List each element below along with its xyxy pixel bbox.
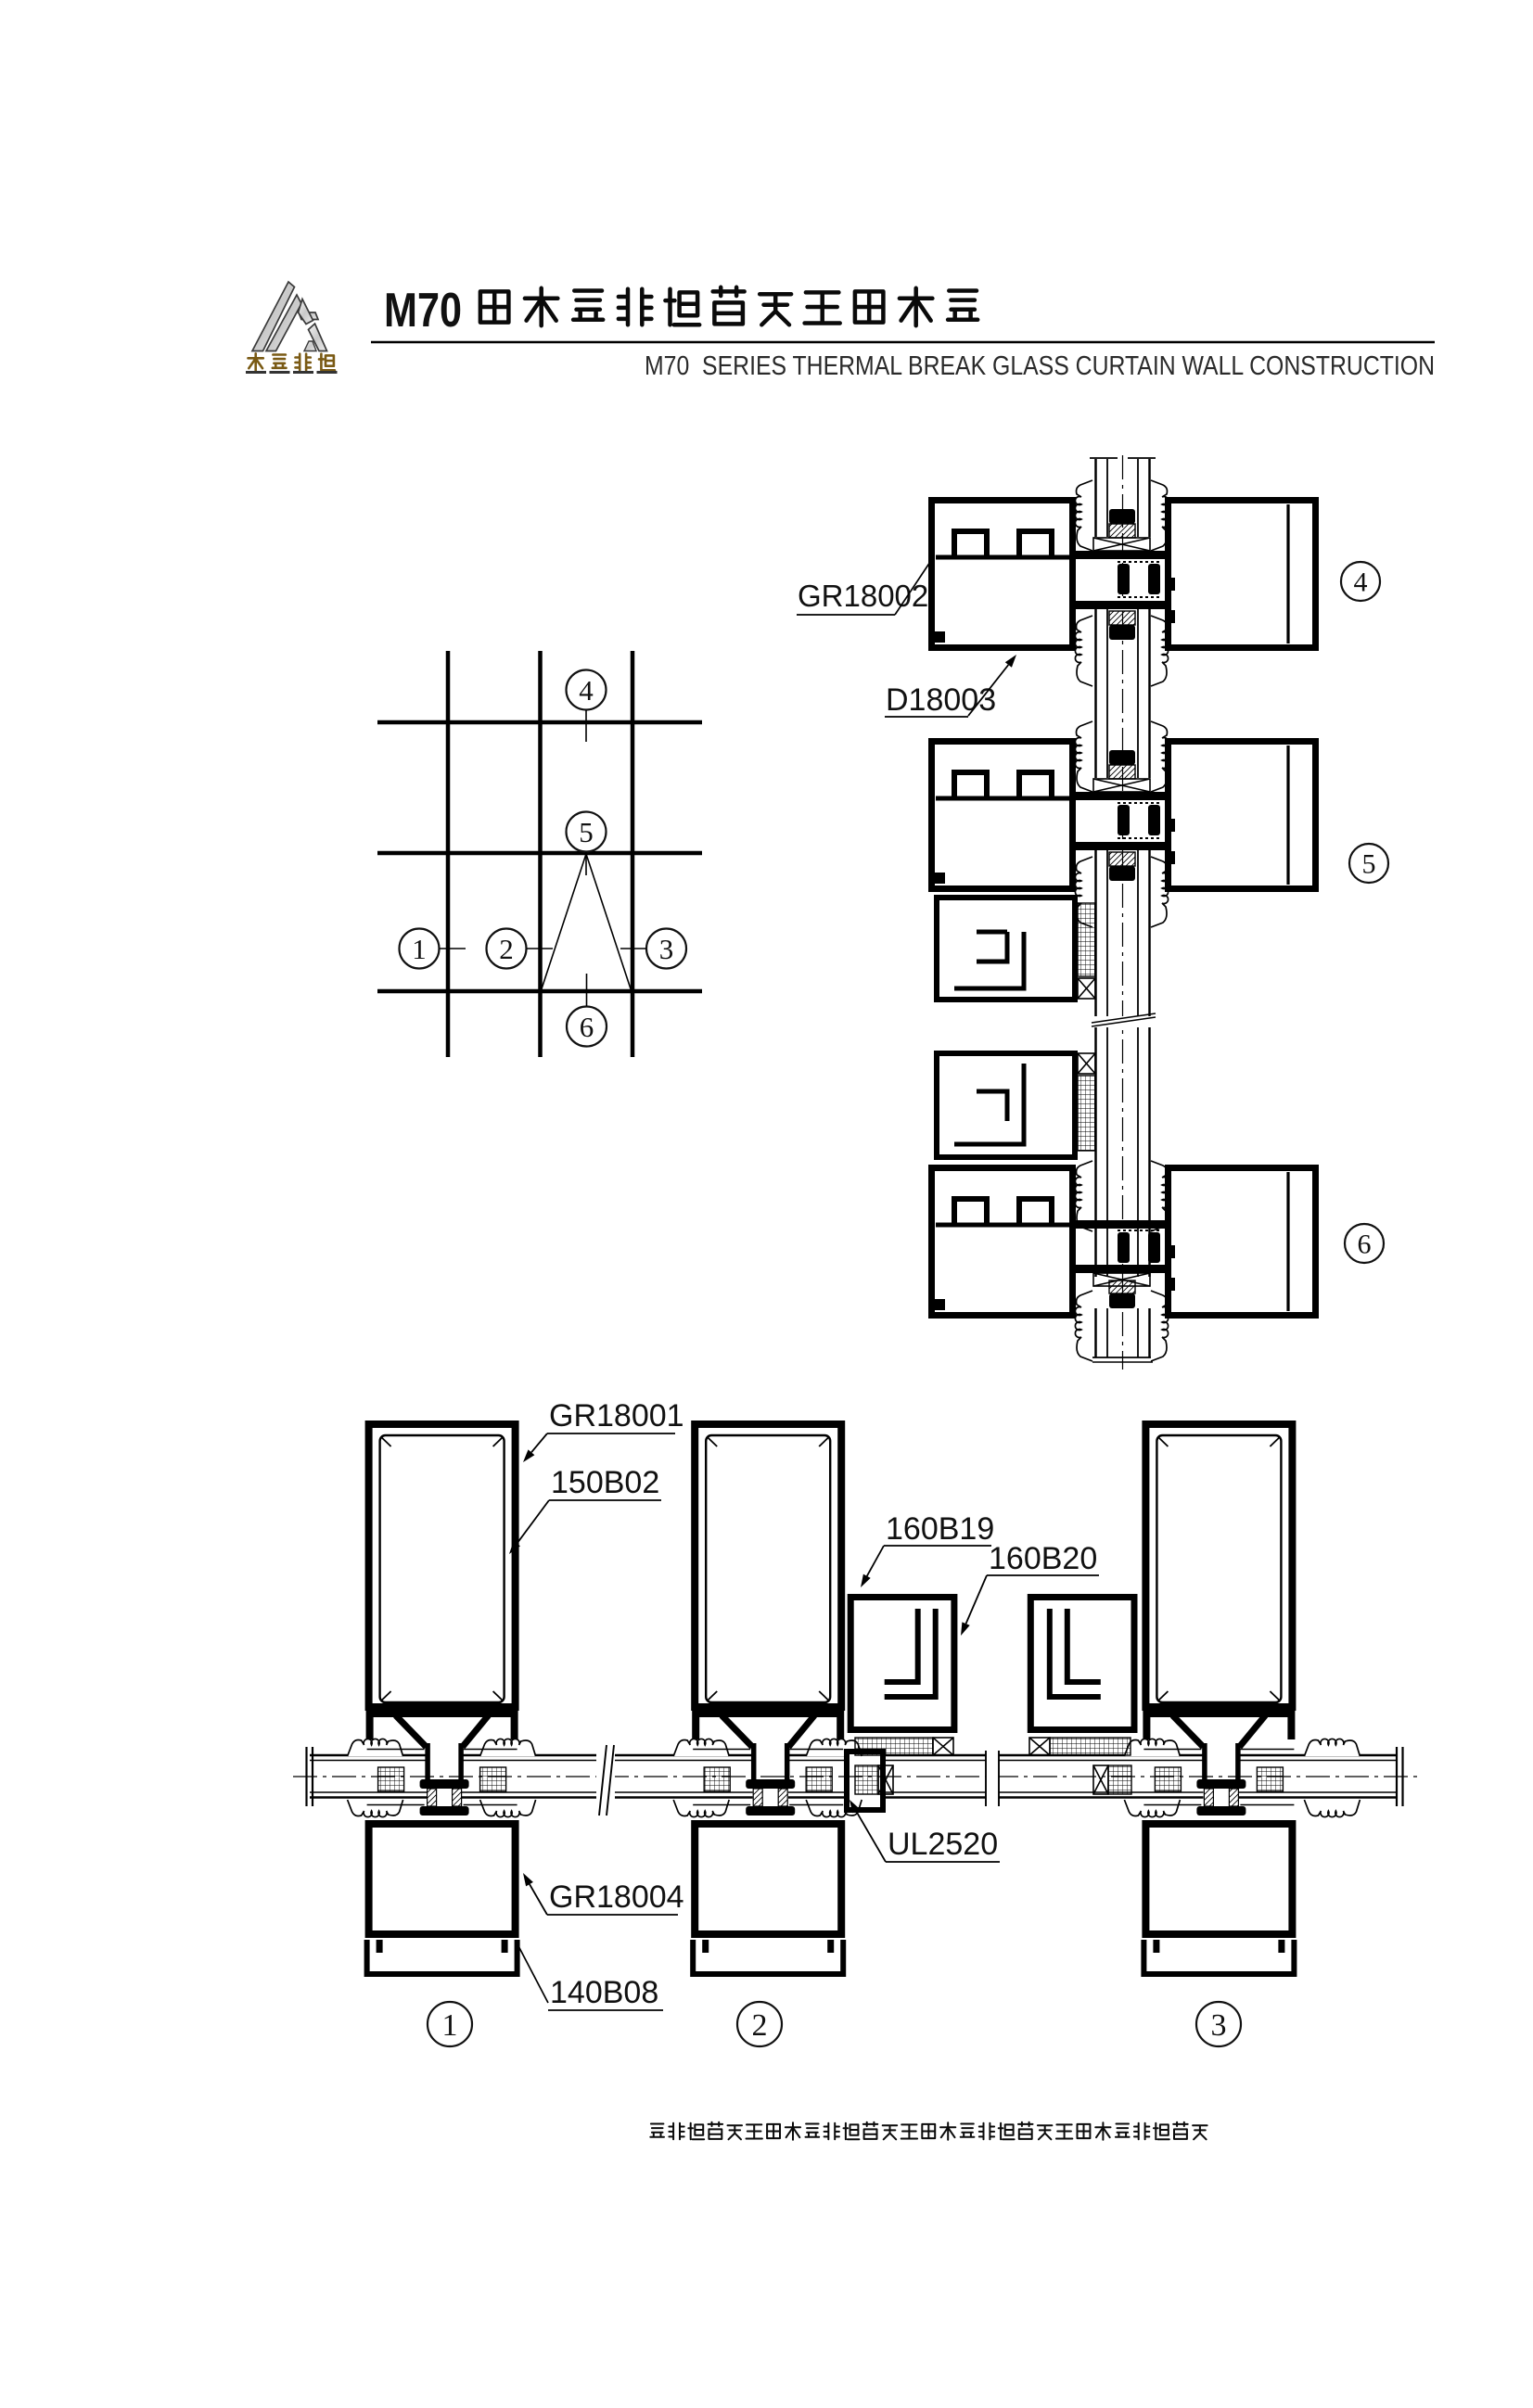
svg-text:2: 2 <box>499 933 514 965</box>
svg-text:160B20: 160B20 <box>989 1541 1097 1576</box>
svg-text:GR18004: GR18004 <box>549 1879 684 1915</box>
svg-text:GR18002: GR18002 <box>798 579 928 613</box>
svg-text:3: 3 <box>659 933 674 965</box>
svg-text:3: 3 <box>1211 2008 1227 2043</box>
svg-text:140B08: 140B08 <box>550 1975 658 2010</box>
svg-text:D18003: D18003 <box>886 682 996 718</box>
svg-text:5: 5 <box>579 816 594 848</box>
svg-text:1: 1 <box>412 933 427 965</box>
svg-text:1: 1 <box>442 2008 458 2043</box>
svg-text:150B02: 150B02 <box>551 1465 659 1500</box>
svg-text:6: 6 <box>1358 1229 1372 1260</box>
svg-text:5: 5 <box>1362 849 1376 880</box>
svg-text:2: 2 <box>752 2008 768 2043</box>
svg-text:GR18001: GR18001 <box>549 1398 684 1433</box>
svg-text:160B19: 160B19 <box>886 1511 994 1547</box>
svg-text:6: 6 <box>580 1011 594 1043</box>
svg-text:4: 4 <box>579 674 594 707</box>
svg-text:UL2520: UL2520 <box>888 1827 998 1862</box>
svg-text:M70: M70 <box>384 284 462 338</box>
svg-text:M70 SERIES THERMAL BREAK GLAS: M70 SERIES THERMAL BREAK GLASS CURTAIN W… <box>645 351 1435 381</box>
svg-text:4: 4 <box>1354 567 1368 598</box>
